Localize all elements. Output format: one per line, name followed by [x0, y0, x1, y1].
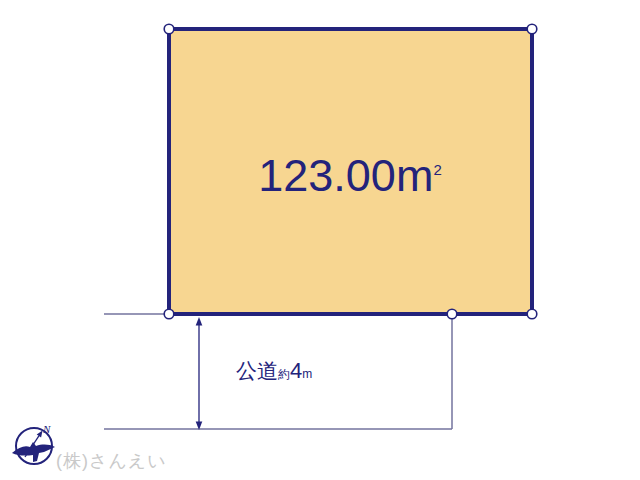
area-value: 123.00 [258, 150, 396, 201]
diagram-canvas: N [0, 0, 640, 480]
road-width-value: 4 [290, 358, 302, 383]
site-plan-diagram: N 123.00m2 公道約4m (株)さんえい [0, 0, 640, 480]
bird-silhouette-icon [12, 442, 55, 462]
road-label: 公道約4m [236, 360, 312, 382]
vertex-marker-bottom-left [164, 309, 174, 319]
vertex-marker-bottom-mid [447, 309, 457, 319]
lot-area-label: 123.00m2 [167, 153, 533, 198]
road-name: 公道 [236, 359, 278, 382]
road-approx: 約 [278, 367, 290, 381]
area-unit: m [396, 150, 434, 201]
road-width-unit: m [302, 367, 312, 381]
company-watermark: (株)さんえい [56, 449, 167, 473]
dimension-arrowhead-top [196, 317, 203, 326]
vertex-marker-top-right [527, 24, 537, 34]
area-exponent: 2 [433, 161, 441, 178]
road-width-dimension-arrow [196, 317, 203, 430]
north-label: N [42, 423, 51, 435]
vertex-marker-bottom-right [527, 309, 537, 319]
compass-logo-icon: N [12, 423, 55, 464]
vertex-marker-top-left [164, 24, 174, 34]
compass-arrowhead [37, 431, 43, 438]
